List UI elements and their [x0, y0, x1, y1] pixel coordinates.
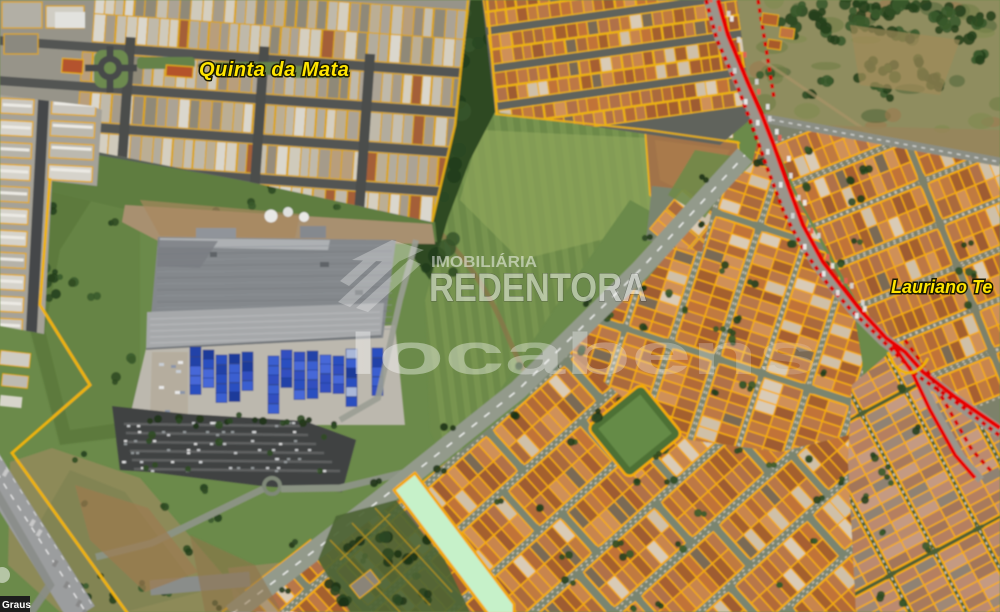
svg-text:REDENTORA: REDENTORA — [429, 266, 647, 310]
svg-text:Lauriano Te: Lauriano Te — [891, 277, 992, 297]
svg-text:Quinta da Mata: Quinta da Mata — [199, 59, 349, 81]
svg-text:locabens: locabens — [348, 322, 818, 387]
svg-text:Graus: Graus — [2, 600, 31, 611]
